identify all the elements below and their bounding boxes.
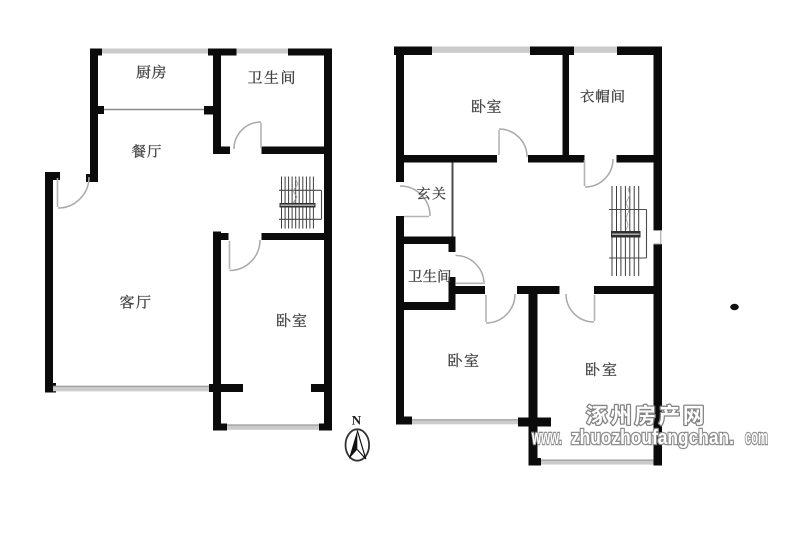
svg-text:zhuozhoufangchan.: zhuozhoufangchan. [571, 426, 734, 448]
svg-text:com: com [745, 427, 768, 449]
svg-text:www.: www. [531, 427, 562, 449]
svg-text:N: N [352, 413, 362, 428]
